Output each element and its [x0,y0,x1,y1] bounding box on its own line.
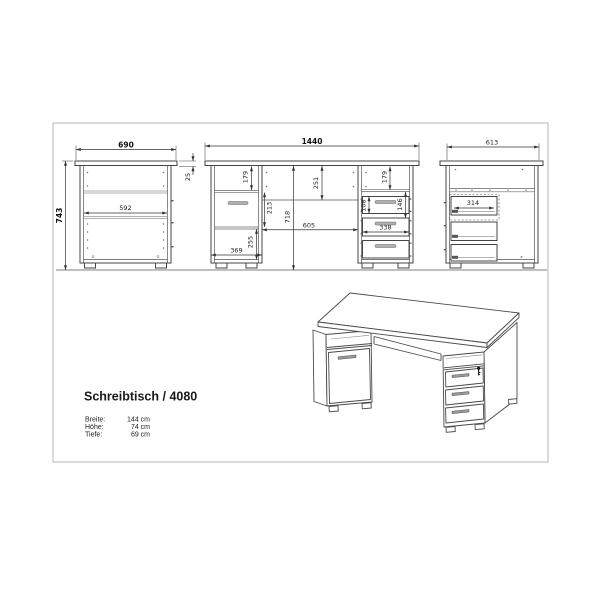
dim-interior-width: 592 [119,204,131,212]
dim-door-height: 213 [266,202,274,214]
dim-drawer-front-height: 108 [360,199,368,211]
dim-top-thickness: 25 [184,173,192,181]
foot [523,263,534,268]
foot [362,263,373,268]
desktop-profile [75,161,177,166]
knee-space: 251 718 605 [262,166,358,270]
drawer-handle [375,245,396,248]
product-title: Schreibtisch / 4080 [84,390,197,404]
dim-overall-width: 1440 [302,137,323,146]
left-end-panel [313,330,327,406]
drawer-front-3 [363,241,410,259]
foot-3d [446,427,455,433]
dim-drawer-pitch: 146 [396,198,404,210]
dim-overall-height: 743 [55,208,64,224]
spec-label-hoehe: Höhe: [85,424,104,431]
dim-interior-height: 718 [284,211,292,223]
dim-overall-depth: 613 [486,139,498,147]
right-side-view: 613 314 [440,139,543,269]
foot [450,263,461,268]
foot [156,263,167,268]
drawer-handle [375,201,396,204]
door-handle [228,202,248,205]
foot-3d [362,403,371,409]
catalog-drawing-page: 690 743 592 25 1440 [0,0,600,600]
spec-value-hoehe: 74 cm [131,424,150,431]
left-side-view: 690 743 592 25 [55,141,196,271]
spec-label-breite: Breite: [85,417,105,424]
cabinet-body [80,166,171,264]
foot [398,263,409,268]
foot [216,263,227,268]
left-pedestal: 179 213 255 369 [211,166,274,269]
spec-table: Breite: 144 cm Höhe: 74 cm Tiefe: 69 cm [85,417,150,439]
dim-drawer-depth: 314 [467,199,479,207]
foot-3d [509,399,518,404]
spec-value-tiefe: 69 cm [131,432,150,439]
desktop-front [205,161,419,166]
spec-label-tiefe: Tiefe: [85,432,102,439]
technical-drawing-canvas: 690 743 592 25 1440 [0,0,600,600]
dim-shelf-height-right: 179 [381,171,389,183]
dim-knee-opening-width: 605 [303,222,315,230]
dim-lower-height: 255 [247,236,255,248]
front-view: 1440 179 213 255 369 [205,137,419,270]
right-pedestal: 179 108 146 338 [358,166,413,269]
dim-pedestal-width: 369 [230,247,242,255]
dim-drawer-width: 338 [379,224,391,232]
foot [85,263,96,268]
dim-knee-opening-height: 251 [312,177,320,189]
dim-shelf-height-left: 179 [242,171,250,183]
foot-3d [329,406,338,412]
dim-overall-width-side: 690 [118,141,134,150]
perspective-view [313,293,519,432]
desktop-profile [440,161,543,166]
spec-value-breite: 144 cm [127,417,150,424]
foot-3d [475,424,484,430]
foot [246,263,257,268]
